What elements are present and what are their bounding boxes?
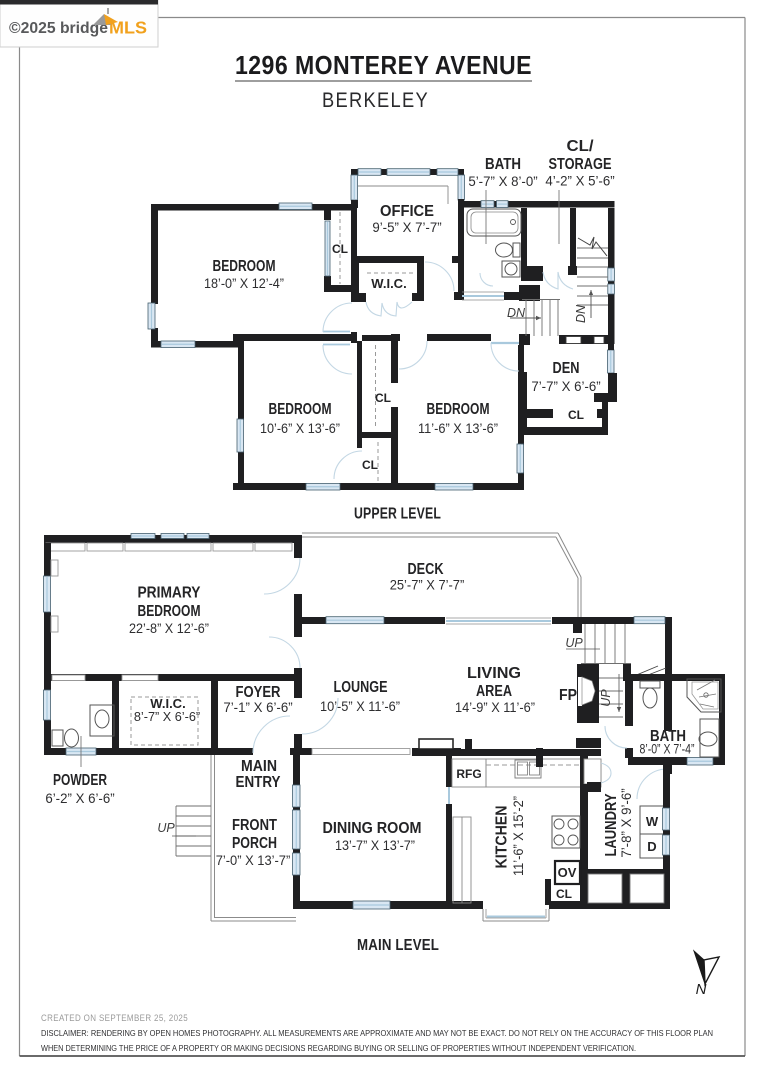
svg-text:8’-7” X 6’-6”: 8’-7” X 6’-6” [134, 709, 200, 724]
svg-text:22’-8” X 12’-6”: 22’-8” X 12’-6” [129, 620, 209, 636]
svg-text:RFG: RFG [456, 767, 481, 781]
svg-text:CL: CL [362, 458, 378, 472]
svg-text:W.I.C.: W.I.C. [371, 276, 406, 291]
svg-text:7’-8” X 9’-6”: 7’-8” X 9’-6” [618, 788, 634, 858]
svg-text:N: N [696, 981, 707, 998]
svg-text:6’-2” X 6’-6”: 6’-2” X 6’-6” [45, 790, 115, 806]
svg-text:WHEN DETERMINING THE PRICE OF: WHEN DETERMINING THE PRICE OF A PROPERTY… [41, 1043, 636, 1053]
svg-text:MAIN LEVEL: MAIN LEVEL [357, 937, 439, 954]
svg-text:DEN: DEN [553, 360, 580, 377]
svg-text:LIVING: LIVING [467, 665, 521, 682]
svg-text:25’-7” X 7’-7”: 25’-7” X 7’-7” [390, 577, 465, 593]
svg-text:7’-1” X 6’-6”: 7’-1” X 6’-6” [223, 699, 293, 715]
svg-text:9’-5” X 7’-7”: 9’-5” X 7’-7” [372, 219, 442, 235]
svg-text:DN: DN [574, 304, 588, 323]
svg-text:STORAGE: STORAGE [549, 156, 612, 173]
svg-text:PRIMARY: PRIMARY [138, 585, 202, 602]
svg-text:11’-6” X 15’-2”: 11’-6” X 15’-2” [510, 796, 526, 876]
svg-text:DINING ROOM: DINING ROOM [323, 820, 422, 837]
svg-text:18’-0” X 12’-4”: 18’-0” X 12’-4” [204, 275, 284, 291]
svg-text:D: D [647, 839, 656, 854]
svg-text:5’-7” X 8’-0”: 5’-7” X 8’-0” [468, 173, 538, 189]
svg-text:BEDROOM: BEDROOM [213, 258, 276, 275]
svg-text:MAIN: MAIN [241, 758, 277, 775]
svg-text:10’-5” X 11’-6”: 10’-5” X 11’-6” [320, 698, 400, 714]
svg-text:10’-6” X 13’-6”: 10’-6” X 13’-6” [260, 420, 340, 436]
svg-text:DISCLAIMER: RENDERING BY OPEN: DISCLAIMER: RENDERING BY OPEN HOMES PHOT… [41, 1028, 713, 1038]
svg-text:FP: FP [559, 687, 577, 704]
svg-text:BEDROOM: BEDROOM [138, 603, 201, 620]
svg-text:UP: UP [157, 821, 175, 835]
svg-text:POWDER: POWDER [53, 772, 107, 789]
svg-text:4’-2” X 5’-6”: 4’-2” X 5’-6” [545, 173, 615, 189]
svg-text:ENTRY: ENTRY [236, 774, 282, 791]
svg-text:14’-9” X 11’-6”: 14’-9” X 11’-6” [455, 699, 535, 715]
svg-text:BEDROOM: BEDROOM [427, 401, 490, 418]
svg-text:CL/: CL/ [567, 138, 595, 155]
svg-text:13’-7” X 13’-7”: 13’-7” X 13’-7” [335, 837, 415, 853]
svg-text:OFFICE: OFFICE [380, 203, 434, 220]
svg-text:8’-0” X 7’-4”: 8’-0” X 7’-4” [640, 741, 695, 757]
svg-text:KITCHEN: KITCHEN [494, 806, 511, 869]
svg-text:BERKELEY: BERKELEY [322, 89, 429, 112]
svg-text:7’-7” X 6’-6”: 7’-7” X 6’-6” [531, 378, 601, 394]
svg-text:W: W [646, 814, 659, 829]
svg-text:OV: OV [558, 865, 577, 880]
svg-text:1296 MONTEREY AVENUE: 1296 MONTEREY AVENUE [235, 50, 532, 80]
svg-text:BATH: BATH [485, 156, 521, 173]
svg-text:LOUNGE: LOUNGE [334, 679, 388, 696]
svg-text:AREA: AREA [476, 683, 512, 700]
svg-text:UP: UP [599, 689, 613, 707]
svg-text:CL: CL [556, 887, 572, 901]
svg-text:11’-6” X 13’-6”: 11’-6” X 13’-6” [418, 420, 498, 436]
svg-text:DECK: DECK [408, 561, 445, 578]
svg-text:PORCH: PORCH [232, 835, 277, 852]
svg-text:©2025 bridge: ©2025 bridge [9, 20, 108, 37]
svg-text:CREATED ON SEPTEMBER 25, 2025: CREATED ON SEPTEMBER 25, 2025 [41, 1013, 188, 1023]
svg-text:UP: UP [565, 636, 583, 650]
svg-text:BEDROOM: BEDROOM [269, 401, 332, 418]
svg-text:CL: CL [568, 408, 584, 422]
svg-text:UPPER LEVEL: UPPER LEVEL [354, 506, 441, 523]
svg-text:CL: CL [375, 391, 391, 405]
svg-text:FRONT: FRONT [232, 817, 277, 834]
svg-text:7’-0” X 13’-7”: 7’-0” X 13’-7” [216, 852, 291, 868]
